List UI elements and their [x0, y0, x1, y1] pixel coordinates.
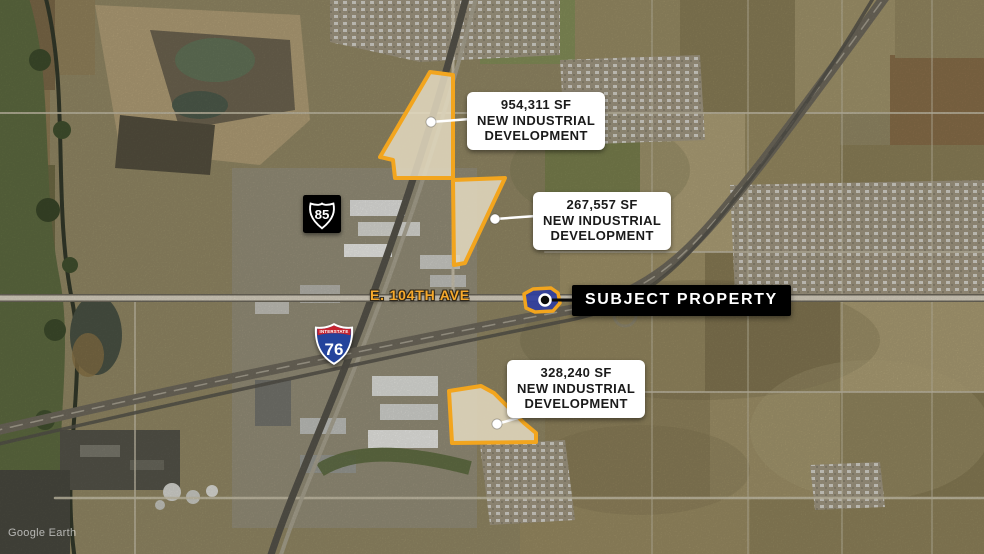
i-76-interstate-shield-icon: INTERSTATE 76: [314, 322, 354, 371]
callout-954311-size: 954,311 SF: [477, 97, 595, 113]
us-85-route-shield-icon: 85: [303, 195, 341, 238]
callout-267557-line3: DEVELOPMENT: [543, 228, 661, 244]
callout-267557-line2: NEW INDUSTRIAL: [543, 213, 661, 229]
subject-property-label: SUBJECT PROPERTY: [572, 285, 791, 316]
callout-328240-size: 328,240 SF: [517, 365, 635, 381]
google-earth-watermark: Google Earth: [8, 527, 76, 539]
callout-328240-line2: NEW INDUSTRIAL: [517, 381, 635, 397]
road-label-e-104th-ave: E. 104TH AVE: [370, 287, 470, 303]
callout-954311-line3: DEVELOPMENT: [477, 128, 595, 144]
annotation-overlay: 954,311 SF NEW INDUSTRIAL DEVELOPMENT 26…: [0, 0, 984, 554]
callout-267557: 267,557 SF NEW INDUSTRIAL DEVELOPMENT: [533, 192, 671, 250]
i-76-number: 76: [325, 340, 344, 359]
callout-328240: 328,240 SF NEW INDUSTRIAL DEVELOPMENT: [507, 360, 645, 418]
callout-267557-size: 267,557 SF: [543, 197, 661, 213]
callout-954311: 954,311 SF NEW INDUSTRIAL DEVELOPMENT: [467, 92, 605, 150]
i-76-banner: INTERSTATE: [320, 329, 349, 334]
callout-328240-line3: DEVELOPMENT: [517, 396, 635, 412]
callout-954311-line2: NEW INDUSTRIAL: [477, 113, 595, 129]
us-85-number: 85: [315, 207, 330, 222]
aerial-map: 954,311 SF NEW INDUSTRIAL DEVELOPMENT 26…: [0, 0, 984, 554]
